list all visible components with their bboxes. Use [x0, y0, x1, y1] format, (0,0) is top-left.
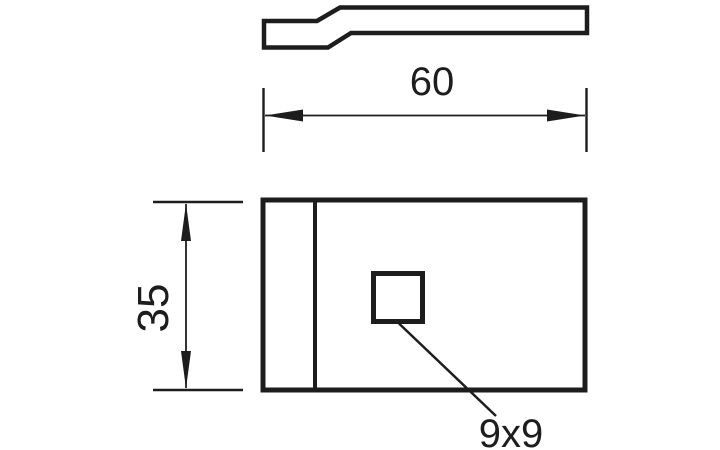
technical-drawing: 60 35 9x9 — [0, 0, 720, 450]
width-arrowhead-left — [265, 110, 303, 122]
width-dimension-label: 60 — [410, 60, 455, 104]
width-dimension: 60 — [264, 60, 587, 152]
square-hole — [374, 274, 423, 322]
width-arrowhead-right — [547, 110, 585, 122]
height-arrowhead-top — [181, 204, 191, 242]
plan-view — [263, 200, 585, 390]
height-arrowhead-bottom — [181, 351, 191, 389]
height-dimension-label: 35 — [129, 284, 178, 333]
hole-size-label: 9x9 — [479, 412, 544, 450]
side-view-joggled-plate-outline — [264, 8, 587, 48]
side-view — [264, 8, 587, 48]
hole-callout: 9x9 — [399, 324, 543, 450]
hole-leader-line — [399, 324, 496, 417]
height-dimension: 35 — [129, 202, 243, 390]
